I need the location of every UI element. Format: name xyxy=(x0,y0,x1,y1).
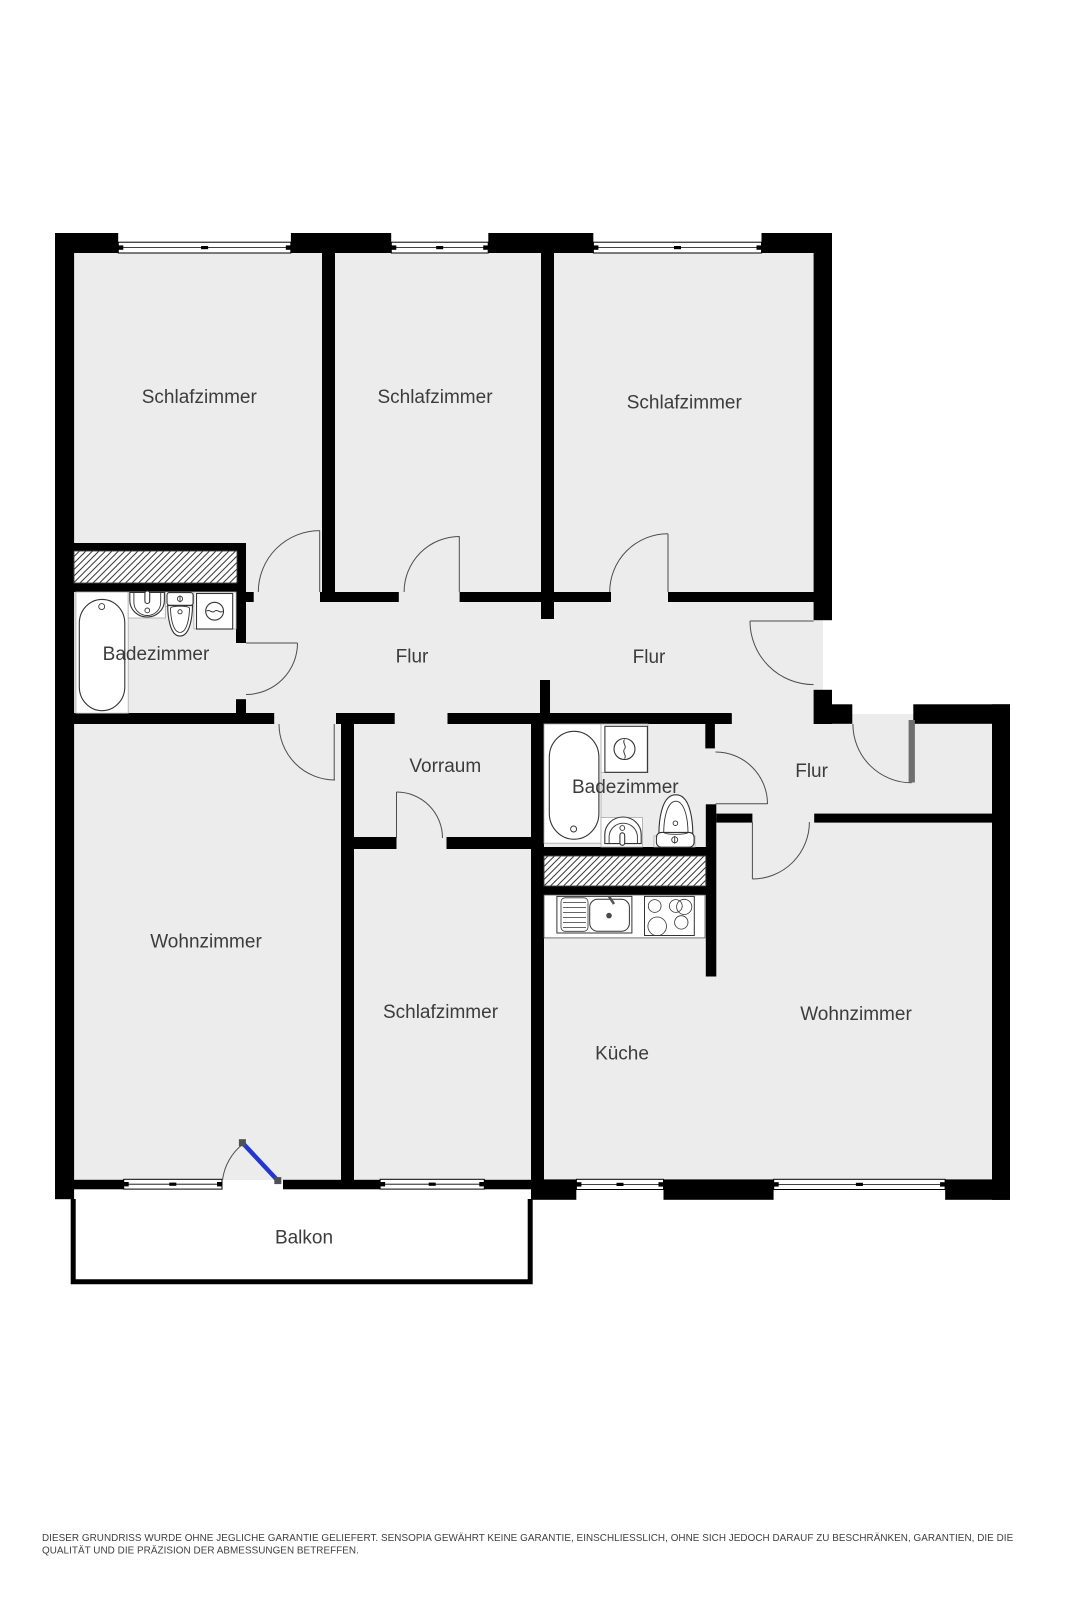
svg-text:Vorraum: Vorraum xyxy=(409,756,481,777)
svg-text:Flur: Flur xyxy=(396,647,429,668)
svg-text:QUALITÄT UND DIE PRÄZISION DER: QUALITÄT UND DIE PRÄZISION DER ABMESSUNG… xyxy=(42,1546,359,1557)
svg-text:Badezimmer: Badezimmer xyxy=(572,777,679,798)
svg-text:Küche: Küche xyxy=(595,1044,649,1065)
svg-text:Schlafzimmer: Schlafzimmer xyxy=(383,1002,499,1023)
svg-text:DIESER GRUNDRISS WURDE OHNE JE: DIESER GRUNDRISS WURDE OHNE JEGLICHE GAR… xyxy=(42,1533,1014,1544)
svg-text:Schlafzimmer: Schlafzimmer xyxy=(627,393,743,414)
svg-text:Schlafzimmer: Schlafzimmer xyxy=(377,387,493,408)
svg-text:Schlafzimmer: Schlafzimmer xyxy=(142,387,258,408)
svg-text:Balkon: Balkon xyxy=(275,1228,333,1249)
svg-text:Flur: Flur xyxy=(633,647,666,668)
svg-text:Badezimmer: Badezimmer xyxy=(103,644,210,665)
svg-text:Wohnzimmer: Wohnzimmer xyxy=(800,1004,912,1025)
svg-text:Flur: Flur xyxy=(795,761,828,782)
svg-text:Wohnzimmer: Wohnzimmer xyxy=(150,932,262,953)
